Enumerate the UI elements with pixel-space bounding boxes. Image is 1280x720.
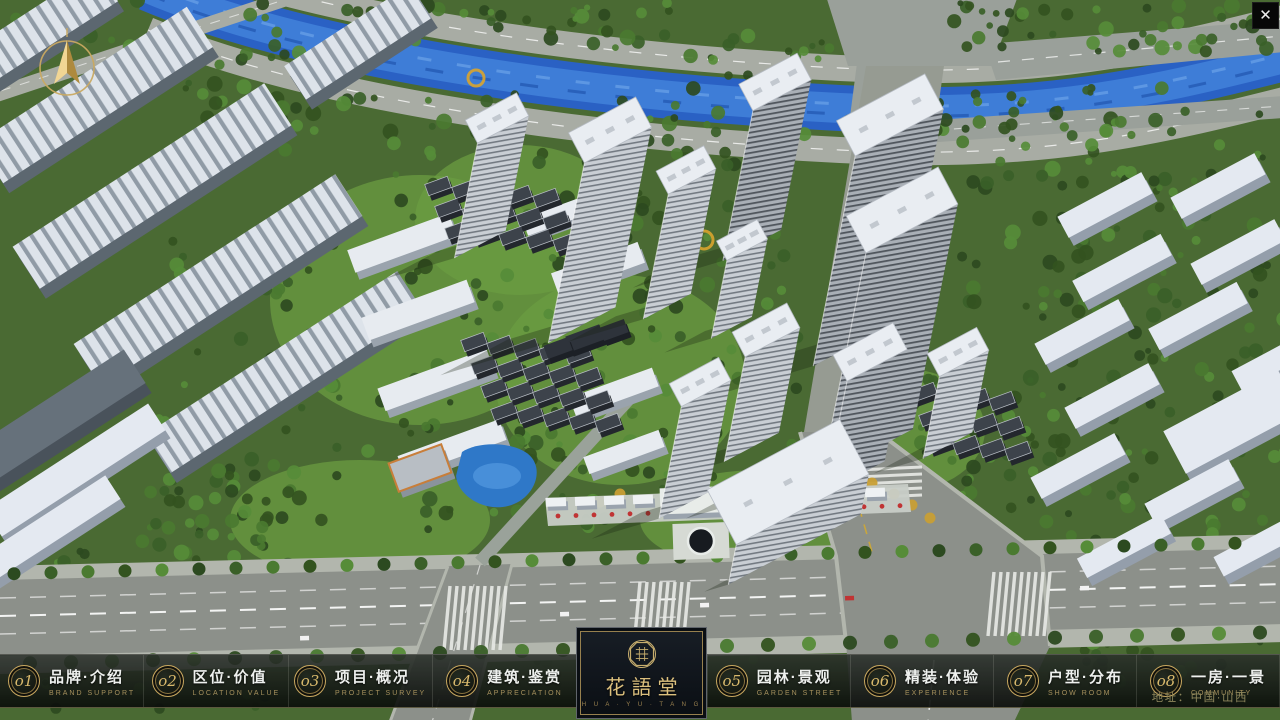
menu-title: 户型·分布: [1048, 666, 1123, 687]
project-logo[interactable]: 花語堂 H U A · Y U · T A N G: [576, 627, 707, 719]
menu-title: 建筑·鉴赏: [487, 666, 562, 687]
menu-title: 品牌·介绍: [49, 666, 124, 687]
compass-icon: [36, 28, 98, 102]
menu-number-badge: o7: [1007, 665, 1039, 697]
masterplan-render[interactable]: [0, 0, 1280, 720]
menu-number-badge: o3: [294, 665, 326, 697]
menu-number: o6: [871, 672, 890, 690]
menu-item-location-value[interactable]: o2 区位·价值 LOCATION VALUE: [143, 655, 287, 707]
menu-number: o4: [453, 672, 472, 690]
menu-subtitle: EXPERIENCE: [905, 690, 970, 697]
close-icon: ✕: [1259, 8, 1272, 23]
logo-seal-icon: [627, 639, 657, 669]
logo-title: 花語堂: [600, 671, 684, 700]
menu-number: o2: [158, 672, 177, 690]
menu-title: 园林·景观: [757, 666, 832, 687]
menu-number-badge: o4: [446, 665, 478, 697]
menu-group-left: o1 品牌·介绍 BRAND SUPPORT o2 区位·价值 LOCATION…: [0, 655, 576, 707]
menu-number-badge: o1: [8, 665, 40, 697]
menu-subtitle: GARDEN STREET: [757, 690, 843, 697]
menu-item-architecture[interactable]: o4 建筑·鉴赏 APPRECIATION: [432, 655, 576, 707]
menu-number: o5: [722, 672, 741, 690]
menu-title: 项目·概况: [335, 666, 410, 687]
menu-number-badge: o5: [716, 665, 748, 697]
menu-number-badge: o6: [864, 665, 896, 697]
app-window: { "window": { "close_icon": "✕" }, "logo…: [0, 0, 1280, 720]
menu-subtitle: SHOW ROOM: [1048, 690, 1112, 697]
menu-number: o1: [15, 672, 34, 690]
menu-subtitle: PROJECT SURVEY: [335, 690, 426, 697]
menu-number-badge: o2: [152, 665, 184, 697]
menu-number: o7: [1014, 672, 1033, 690]
close-button[interactable]: ✕: [1252, 2, 1279, 29]
menu-title: 区位·价值: [193, 666, 268, 687]
project-address: 地址：中国·山西: [1152, 689, 1248, 705]
logo-subtitle: H U A · Y U · T A N G: [582, 702, 702, 708]
menu-title: 精装·体验: [905, 666, 980, 687]
menu-subtitle: LOCATION VALUE: [193, 690, 281, 697]
menu-item-brand-intro[interactable]: o1 品牌·介绍 BRAND SUPPORT: [0, 655, 143, 707]
menu-item-project-overview[interactable]: o3 项目·概况 PROJECT SURVEY: [288, 655, 432, 707]
menu-title: 一房·一景: [1191, 666, 1266, 687]
menu-item-floorplan-distribution[interactable]: o7 户型·分布 SHOW ROOM: [993, 655, 1136, 707]
menu-number: o3: [301, 672, 320, 690]
menu-subtitle: APPRECIATION: [487, 690, 563, 697]
menu-item-garden-landscape[interactable]: o5 园林·景观 GARDEN STREET: [707, 655, 850, 707]
menu-subtitle: BRAND SUPPORT: [49, 690, 135, 697]
menu-number: o8: [1157, 672, 1176, 690]
menu-item-interior-experience[interactable]: o6 精装·体验 EXPERIENCE: [850, 655, 993, 707]
